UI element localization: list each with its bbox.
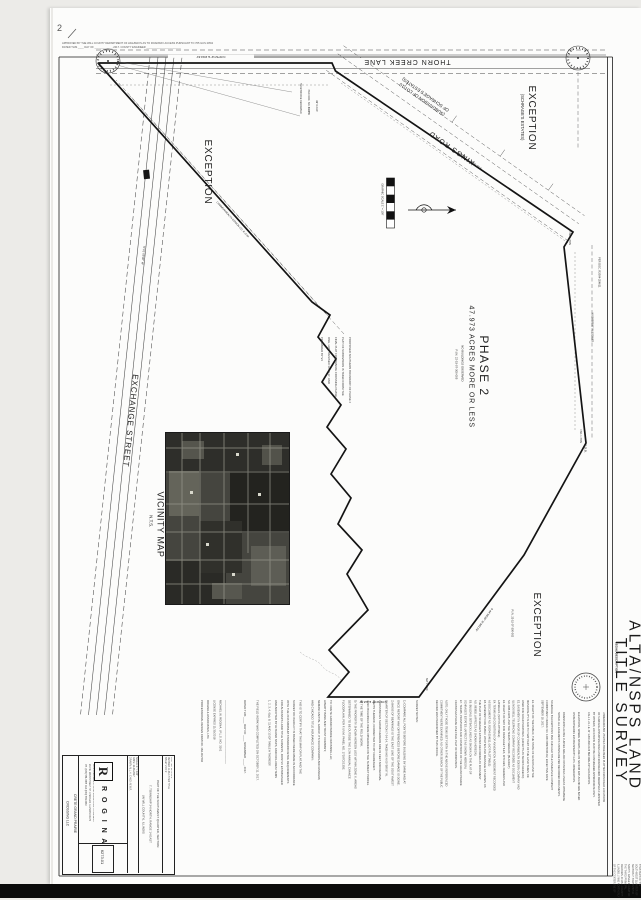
title-block-divider-5 (78, 843, 127, 844)
found-pipe-2: FND. I. PIPE (579, 423, 581, 449)
page-number-mark: 2 (57, 24, 62, 33)
certification-notes-block: SURVEY NOTES: 1) COMPARE ALL POINTS BEFO… (186, 700, 420, 878)
general-notes-block: UNDERGROUND UTILITIES HAVE BEEN PLOTTED … (556, 712, 606, 896)
kings-road-lines (326, 46, 584, 241)
vicinity-aerial-photo (165, 432, 290, 605)
thorn-creek-lane-label: THORN CREEK LANE (360, 58, 454, 65)
surveyor-seal (572, 673, 600, 701)
graphic-scale-note: GRAPHIC SCALE 1" = 100' (380, 172, 383, 226)
bearing-east-doc: PER DOC. R2004-254611 (597, 245, 600, 299)
rogina-wordmark: R O G I N A (100, 786, 107, 841)
bearing-east-line: N 00°58'06" W 1319.85' (591, 292, 594, 362)
sheet-title-line2: TITLE SURVEY (612, 636, 628, 786)
leader-lines (119, 62, 300, 116)
acreage-label: 47.973 ACRES MORE OR LESS (468, 306, 475, 424)
exception-label-northeast: EXCEPTION (526, 83, 536, 153)
legal-description-text: THAT PART OF THE SOUTHWEST QUARTER OF SE… (613, 864, 641, 900)
title-block-divider-1 (78, 755, 79, 873)
scale-bar (387, 178, 395, 228)
phase-boundary-note: PROPOSED SOUTHERN BOUNDARY OF PHASE 2 PL… (317, 337, 353, 441)
title-block-fields-2: PLAT NO. 6273.01-2 REVISED 11-06-17 PER … (163, 757, 172, 871)
bearing-top-line: N 89°52'12" E 2016.63' (168, 55, 254, 58)
north-arrow (408, 205, 456, 214)
title-block-description: PART OF THE SOUTHWEST QUARTER, SECTION 7… (139, 757, 161, 871)
parcel-pin-label: P.I.N. 22-15-07-300-005 (455, 331, 458, 397)
row-width-note: 66' R.O.W. (315, 81, 317, 131)
title-block-fields: SCALE: 1" = 100' DATE: 11-06-2017 DRAWN:… (128, 757, 138, 871)
vicinity-map-title: VICINITY MAP (156, 492, 165, 556)
set-rod-1: SET I. ROD (425, 671, 427, 697)
scanned-survey-page: 2 APPROVED BY THE WILL COUNTY DEPARTMENT… (0, 0, 641, 900)
cul-de-sac-northeast (566, 46, 590, 70)
title-block-divider-2 (127, 755, 128, 873)
exception-schrage-sublabel: (SCHRAGE'S ESTATES) (520, 83, 524, 151)
job-number: 6273.01 (100, 846, 104, 868)
pob-label: P.O.B. (584, 439, 587, 459)
exception-pin-label: P.I.N. 22-15-07-300-002 (510, 593, 513, 653)
vicinity-nts-label: N.T.S. (148, 508, 153, 534)
schedule-b-block: SCHEDULE B EXCEPTIONS PER CHICAGO TITLE … (432, 700, 553, 893)
culvert-mark (143, 170, 150, 180)
rogina-address: CIVIL ENGINEERS • LAND SURVEYORS • PLANN… (82, 764, 94, 840)
title-block-divider-3 (138, 755, 139, 873)
county-approval-note: APPROVED BY THE WILL COUNTY DEPARTMENT O… (62, 42, 342, 49)
title-block-client: CRETE GRAND PRAIRIE CROSSING LLC (63, 757, 78, 871)
exception-label-southeast: EXCEPTION (531, 590, 541, 660)
dedication-doc-note: PER DOC. NO. 893855 (307, 77, 309, 127)
cul-de-sac-west (96, 49, 120, 73)
dedication-note: HERETOFORE DEDICATED (299, 73, 301, 123)
no-buildings-label: NO BUILDINGS OBSERVED (461, 328, 464, 398)
phase-label: PHASE 2 (478, 333, 490, 399)
found-pipe-1: FND. I. PIPE (568, 225, 570, 251)
rogina-logo-mark: R (94, 762, 113, 781)
title-block-divider-4 (162, 755, 163, 873)
